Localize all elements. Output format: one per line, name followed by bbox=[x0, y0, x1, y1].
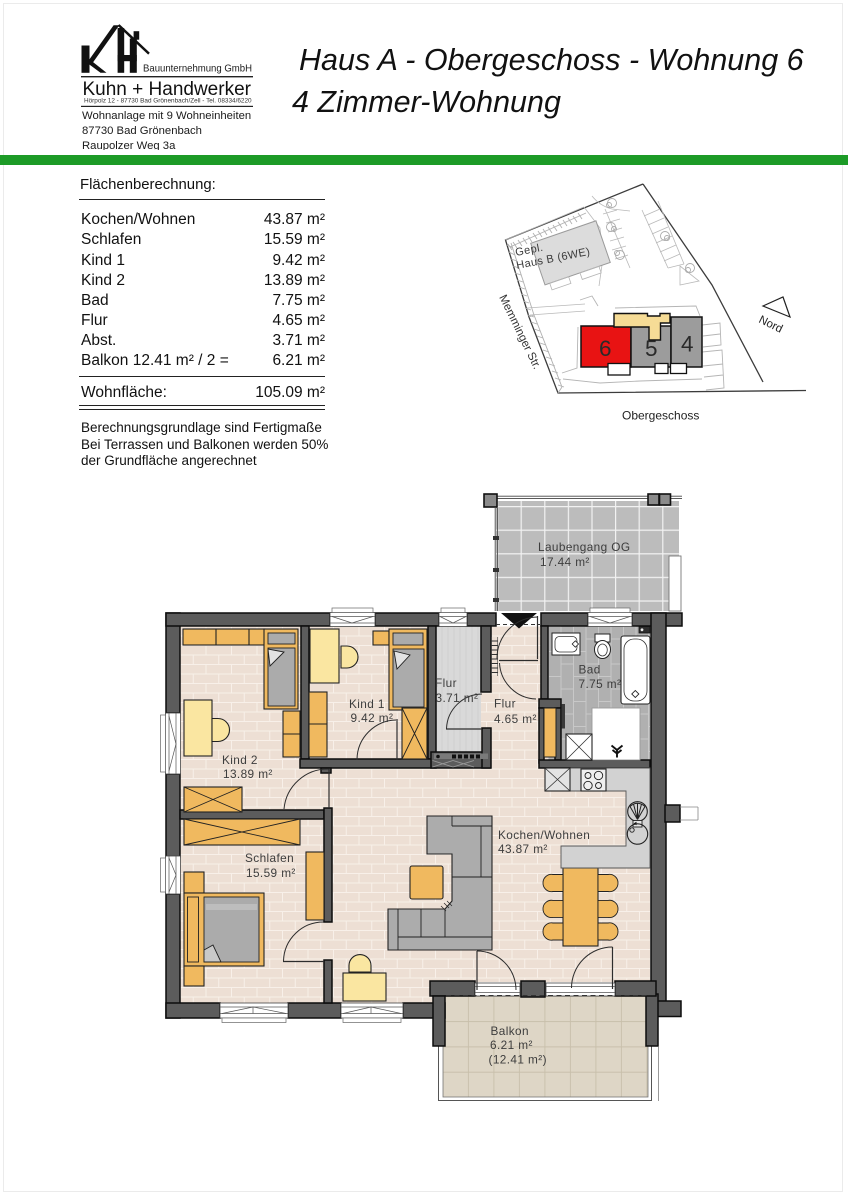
svg-text:Balkon: Balkon bbox=[491, 1024, 529, 1038]
svg-text:17.44 m²: 17.44 m² bbox=[540, 555, 590, 569]
svg-text:Memminger Str.: Memminger Str. bbox=[496, 293, 542, 371]
svg-text:Nord: Nord bbox=[757, 314, 785, 336]
svg-text:Flur: Flur bbox=[435, 676, 457, 690]
svg-text:4.65 m²: 4.65 m² bbox=[494, 712, 537, 726]
svg-text:Bad: Bad bbox=[579, 663, 601, 677]
svg-text:Schlafen: Schlafen bbox=[245, 851, 294, 865]
svg-text:6.21 m²: 6.21 m² bbox=[490, 1038, 533, 1052]
svg-text:Laubengang OG: Laubengang OG bbox=[538, 540, 630, 554]
svg-text:13.89 m²: 13.89 m² bbox=[223, 767, 273, 781]
svg-text:Hörpolz 12 - 87730 Bad Grönenb: Hörpolz 12 - 87730 Bad Grönenbach/Zell -… bbox=[84, 98, 252, 105]
svg-text:9.42 m²: 9.42 m² bbox=[351, 711, 394, 725]
svg-text:(12.41 m²): (12.41 m²) bbox=[489, 1053, 547, 1067]
svg-text:6: 6 bbox=[599, 336, 612, 361]
svg-text:Kochen/Wohnen: Kochen/Wohnen bbox=[498, 828, 590, 842]
svg-text:43.87 m²: 43.87 m² bbox=[498, 842, 548, 856]
svg-text:Wohnanlage mit 9 Wohneinheiten: Wohnanlage mit 9 Wohneinheiten bbox=[82, 110, 251, 122]
svg-text:4: 4 bbox=[681, 332, 694, 357]
svg-text:7.75 m²: 7.75 m² bbox=[579, 677, 622, 691]
svg-text:Flur: Flur bbox=[494, 697, 516, 711]
svg-text:5: 5 bbox=[645, 336, 658, 361]
svg-text:87730 Bad Grönenbach: 87730 Bad Grönenbach bbox=[82, 125, 202, 137]
svg-text:3.71 m²: 3.71 m² bbox=[436, 691, 479, 705]
svg-text:Obergeschoss: Obergeschoss bbox=[622, 409, 699, 423]
svg-text:Bauunternehmung GmbH: Bauunternehmung GmbH bbox=[143, 64, 252, 75]
svg-text:15.59 m²: 15.59 m² bbox=[246, 866, 296, 880]
svg-text:Kind 2: Kind 2 bbox=[222, 753, 258, 767]
svg-text:Raupolzer Weg 3a: Raupolzer Weg 3a bbox=[82, 140, 176, 150]
svg-text:Kind 1: Kind 1 bbox=[349, 697, 385, 711]
